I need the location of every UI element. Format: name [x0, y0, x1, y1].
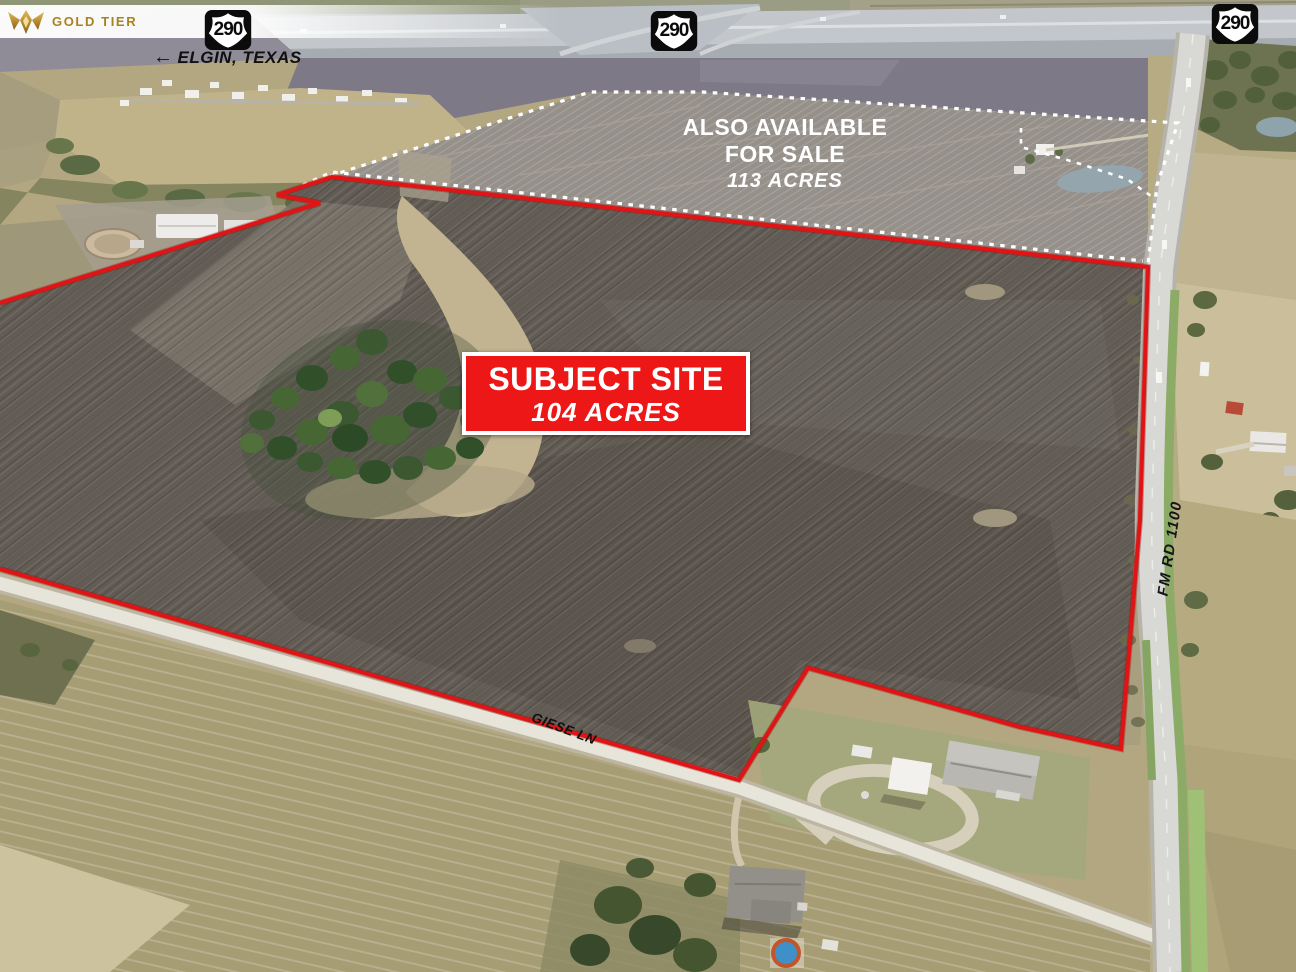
route-number: 290: [204, 19, 252, 41]
left-arrow-icon: ←: [153, 46, 174, 68]
brand-name: GOLD TIER: [52, 14, 137, 29]
direction-note-elgin: ←ELGIN, TEXAS: [153, 46, 302, 69]
brand-banner: GOLD TIER: [0, 5, 560, 38]
direction-label: ELGIN, TEXAS: [178, 48, 302, 67]
also-available-line2: FOR SALE: [652, 141, 918, 168]
route-number: 290: [1211, 13, 1259, 35]
route-shield-290-right: 290: [1211, 3, 1259, 45]
route-shield-290-center: 290: [650, 10, 698, 52]
aerial-listing-image: GOLD TIER 290 290 290 ←ELGIN, TEXAS ALSO…: [0, 0, 1296, 972]
route-number: 290: [650, 20, 698, 42]
also-available-acres: 113 ACRES: [652, 168, 918, 194]
aerial-photo: [0, 0, 1296, 972]
route-shield-290-left: 290: [204, 9, 252, 51]
subject-site-callout: SUBJECT SITE 104 ACRES: [462, 352, 750, 435]
subject-site-title: SUBJECT SITE: [488, 361, 723, 397]
pool: [773, 940, 799, 966]
subject-site-acres: 104 ACRES: [531, 397, 681, 427]
also-available-label: ALSO AVAILABLE FOR SALE 113 ACRES: [652, 114, 918, 194]
gold-tier-logo-icon: [6, 8, 46, 36]
also-available-line1: ALSO AVAILABLE: [652, 114, 918, 141]
